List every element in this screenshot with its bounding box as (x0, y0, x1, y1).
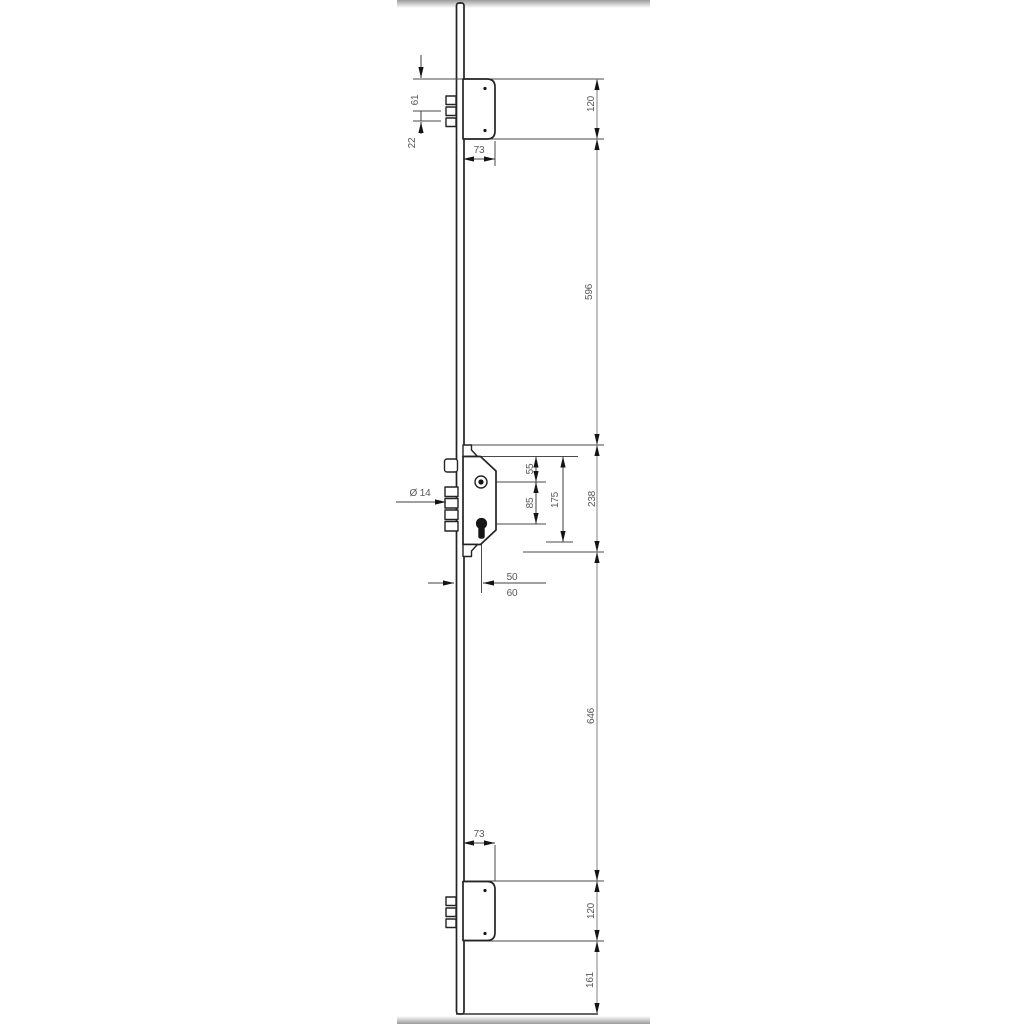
dim-label-175: 175 (550, 491, 561, 508)
deadbolt-pin (445, 499, 458, 509)
dim-label-50: 50 (507, 572, 518, 583)
hook-bolt-pin (446, 908, 456, 917)
dimensions-backset: 50 60 (428, 572, 546, 599)
dim-label-596: 596 (584, 283, 595, 300)
dim-label-60: 60 (507, 588, 518, 599)
dim-label-22: 22 (407, 137, 418, 148)
dimensions-middle: 55 85 175 (525, 457, 563, 543)
dim-label-120-bottom: 120 (586, 902, 597, 919)
screw-hole (483, 87, 486, 90)
drawing-canvas: 120 596 238 646 120 161 61 22 73 73 55 8… (0, 0, 1024, 1024)
dim-label-61: 61 (410, 94, 421, 105)
dim-label-120-top: 120 (586, 95, 597, 112)
cylinder-profile-stem (478, 526, 484, 539)
middle-lock (445, 445, 497, 557)
dim-label-161: 161 (585, 971, 596, 988)
dim-label-diameter-14: Ø 14 (410, 488, 432, 499)
dimension-chain: 120 596 238 646 120 161 (584, 79, 598, 1014)
screw-hole (483, 932, 486, 935)
auxiliary-bolt-bottom (463, 545, 478, 557)
dim-label-73-bottom: 73 (474, 829, 485, 840)
bottom-lock (446, 882, 495, 941)
auxiliary-bolt-top (463, 445, 478, 457)
top-lock-case (463, 79, 495, 139)
diameter-callout: Ø 14 (396, 488, 446, 502)
top-edge-bar (397, 0, 650, 8)
deadbolt-pin (445, 522, 458, 532)
dim-label-238: 238 (587, 490, 598, 507)
dim-label-646: 646 (586, 707, 597, 724)
bottom-lock-case (463, 882, 495, 941)
extension-lines (413, 79, 604, 1014)
dim-label-55: 55 (525, 463, 536, 474)
deadbolt-pin (445, 487, 458, 497)
technical-drawing: 120 596 238 646 120 161 61 22 73 73 55 8… (0, 0, 1024, 1024)
hook-bolt-pin (446, 919, 456, 928)
hook-bolt-pin (446, 107, 456, 116)
spindle-hole-center (478, 479, 483, 484)
bottom-edge-bar (397, 1016, 650, 1024)
hook-bolt-pin (446, 96, 456, 105)
latchbolt (445, 459, 458, 472)
hook-bolt-pin (446, 118, 456, 127)
dimensions-top-left: 61 22 (407, 55, 421, 148)
deadbolt-pin (445, 510, 458, 520)
hook-bolt-pin (446, 897, 456, 906)
dim-label-85: 85 (525, 497, 536, 508)
top-lock (446, 79, 495, 139)
screw-hole (483, 889, 486, 892)
dim-label-73-top: 73 (474, 145, 485, 156)
screw-hole (483, 129, 486, 132)
